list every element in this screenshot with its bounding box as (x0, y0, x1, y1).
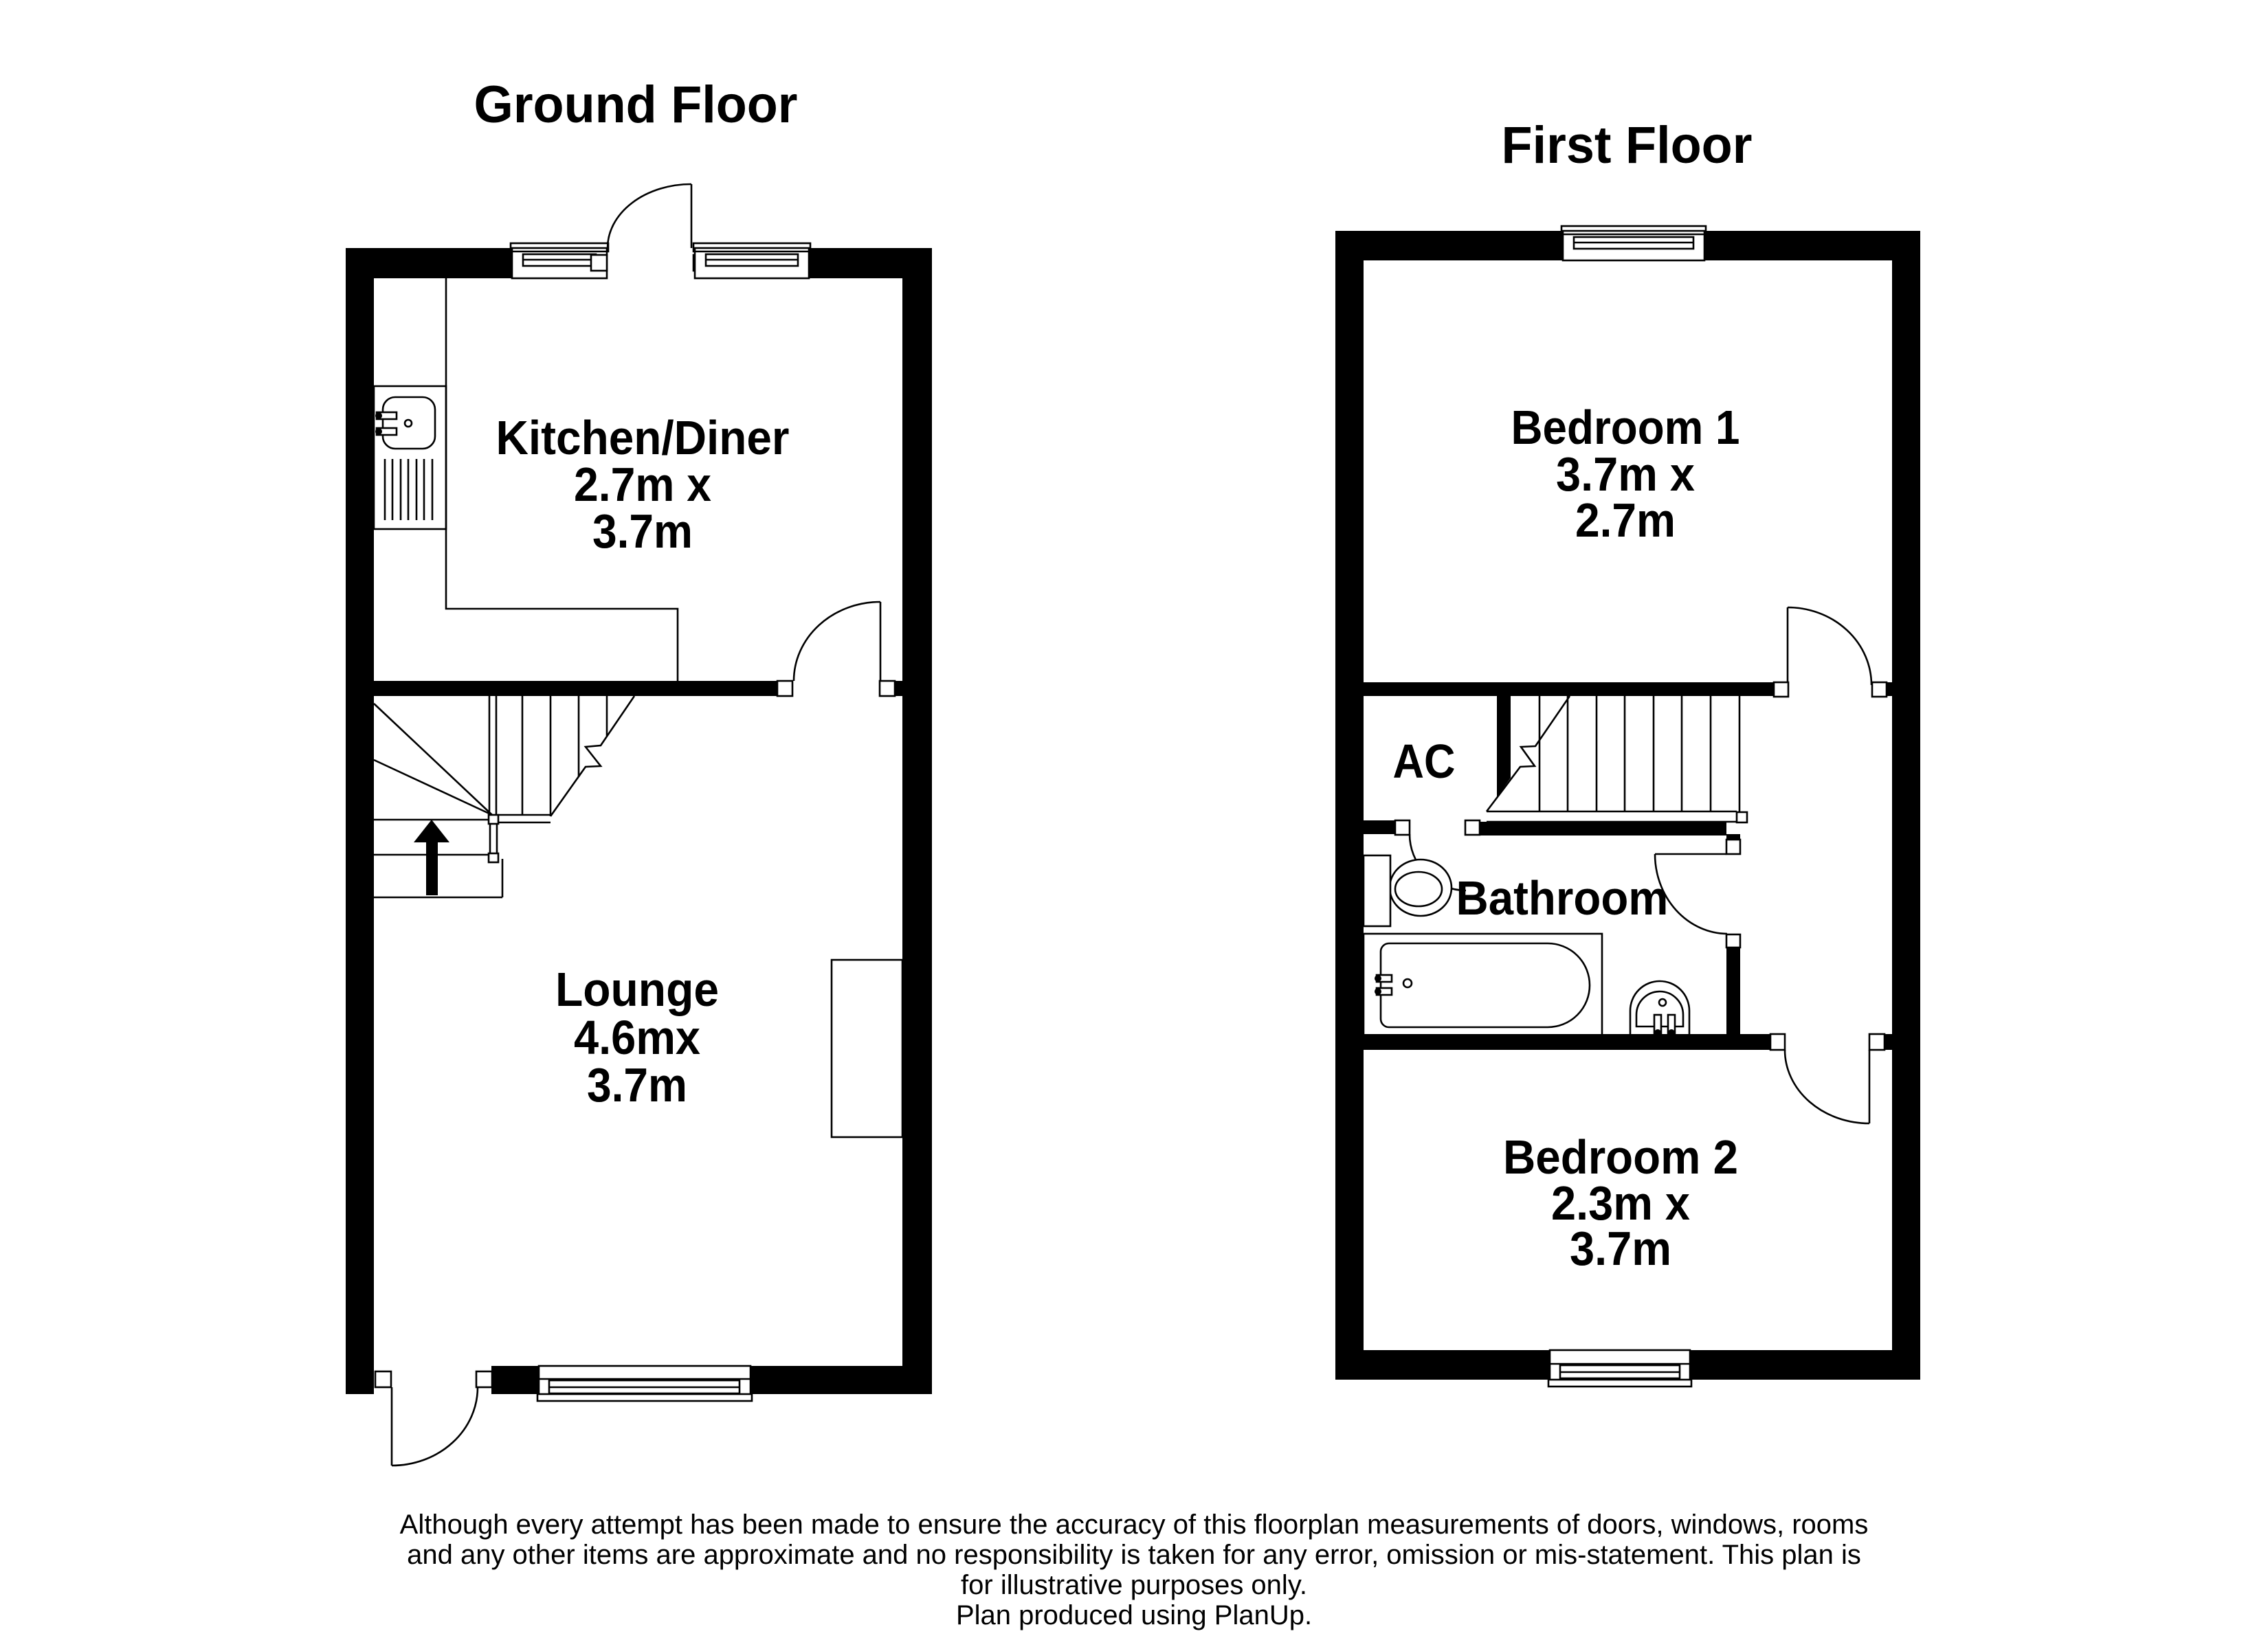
svg-text:and any other items are approx: and any other items are approximate and … (407, 1540, 1861, 1570)
svg-text:3.7m: 3.7m (592, 504, 693, 558)
svg-text:Bedroom 1: Bedroom 1 (1511, 401, 1740, 454)
svg-text:4.6mx: 4.6mx (574, 1011, 700, 1064)
svg-text:Bathroom: Bathroom (1456, 871, 1669, 925)
svg-text:First Floor: First Floor (1502, 116, 1753, 175)
svg-text:2.7m: 2.7m (1575, 493, 1676, 547)
svg-text:Plan produced using PlanUp.: Plan produced using PlanUp. (956, 1600, 1312, 1630)
svg-text:Ground Floor: Ground Floor (474, 76, 798, 134)
svg-text:3.7m: 3.7m (1570, 1222, 1671, 1275)
svg-text:Lounge: Lounge (555, 963, 719, 1016)
svg-text:AC: AC (1393, 734, 1456, 788)
svg-text:2.7m x: 2.7m x (574, 458, 711, 511)
svg-text:for illustrative purposes only: for illustrative purposes only. (961, 1570, 1307, 1600)
svg-text:Kitchen/Diner: Kitchen/Diner (496, 411, 790, 464)
svg-text:Although every attempt has bee: Although every attempt has been made to … (400, 1510, 1869, 1540)
svg-text:3.7m: 3.7m (587, 1058, 687, 1112)
